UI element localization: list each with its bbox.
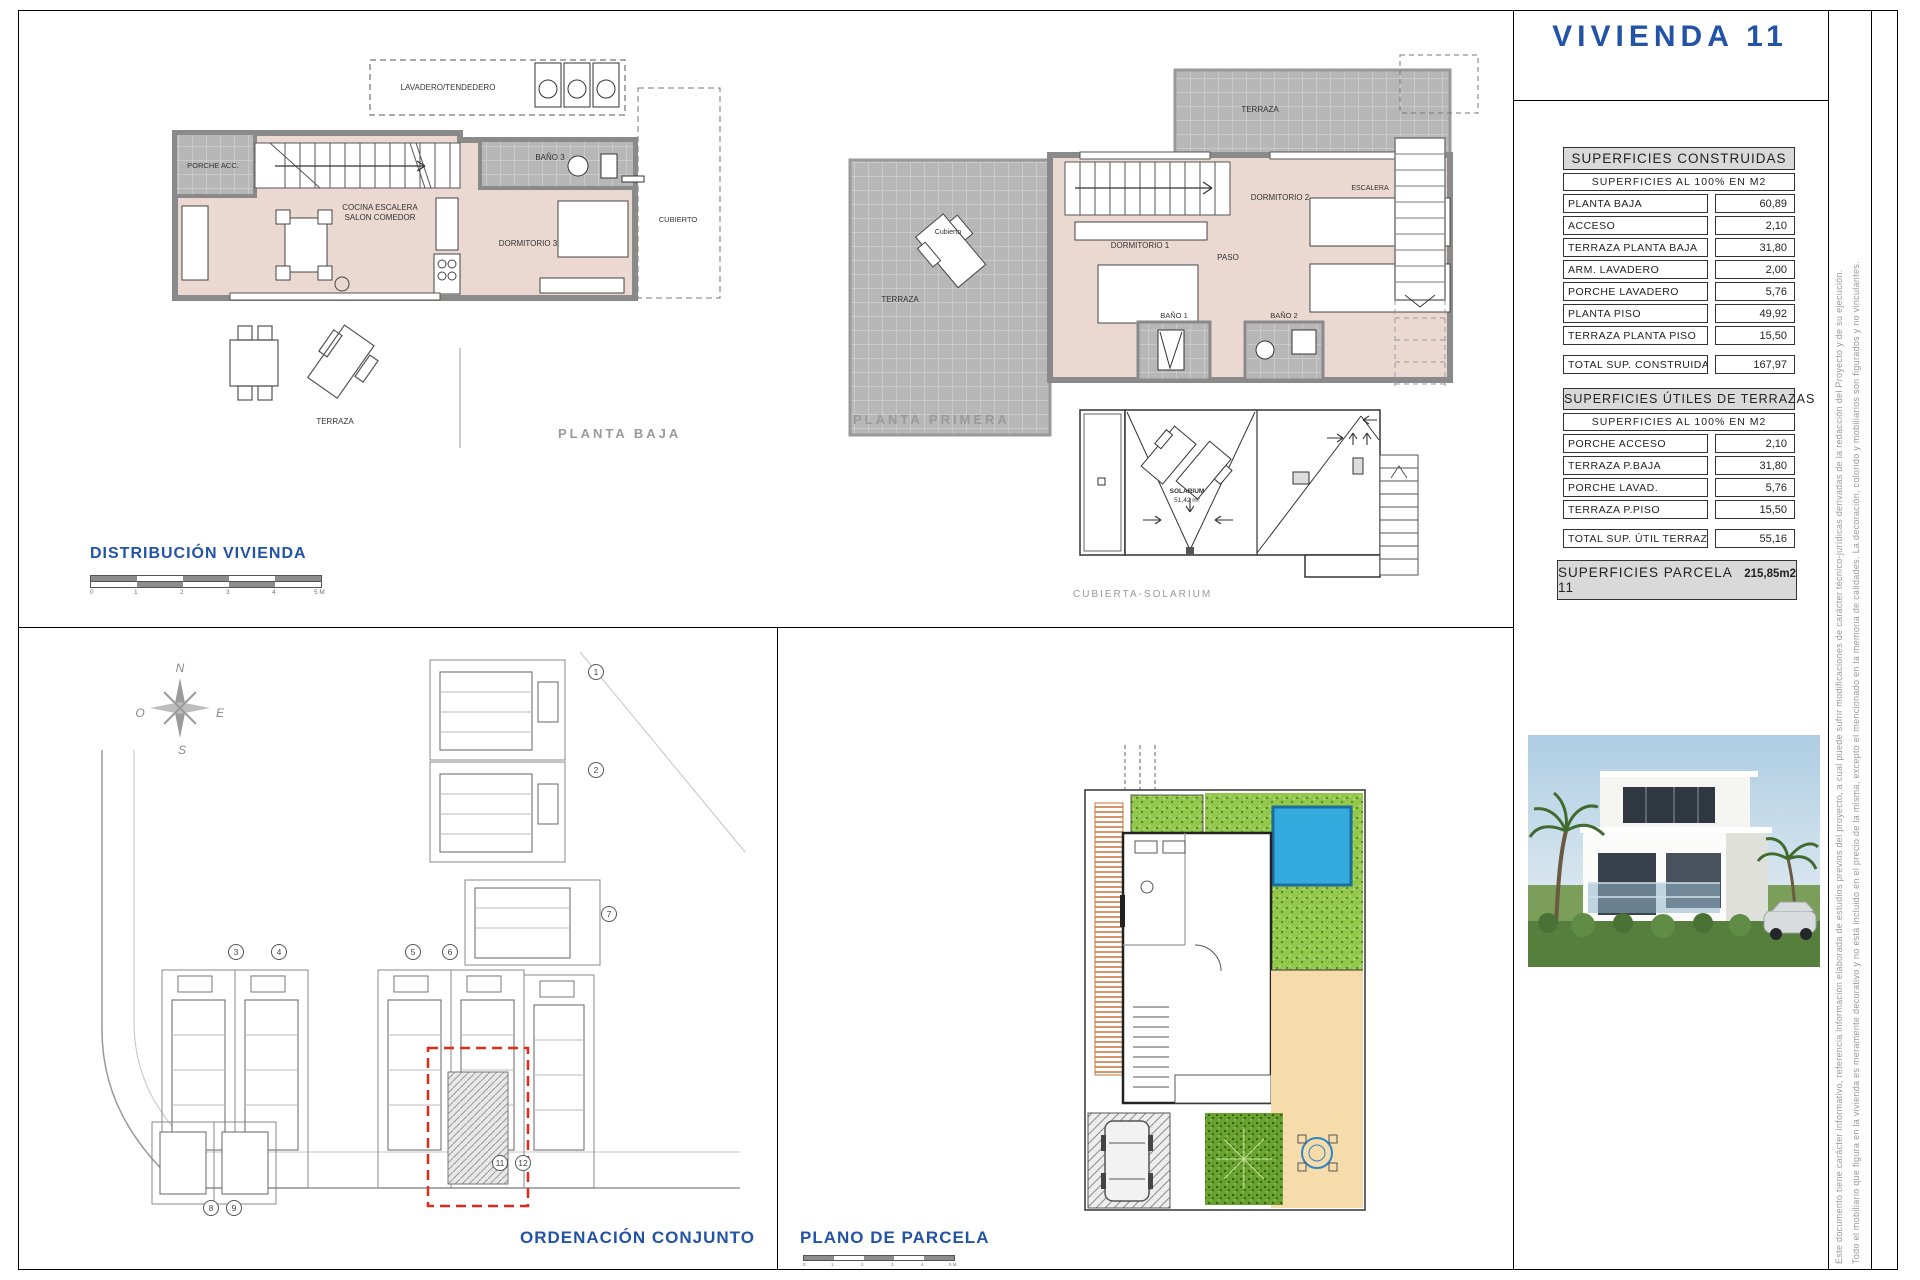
table-superficies-construidas: SUPERFICIES CONSTRUIDAS SUPERFICIES AL 1…: [1563, 147, 1795, 374]
svg-text:BAÑO 2: BAÑO 2: [1270, 311, 1298, 320]
svg-text:BAÑO 3: BAÑO 3: [535, 153, 565, 162]
bano1-room: [1138, 322, 1210, 380]
svg-text:51,42 m²: 51,42 m²: [1174, 497, 1200, 504]
table-row: TERRAZA P.PISO15,50: [1563, 500, 1795, 519]
plot-number-7: 7: [601, 906, 617, 922]
table-row: TERRAZA PLANTA PISO15,50: [1563, 326, 1795, 345]
svg-text:DORMITORIO 3: DORMITORIO 3: [499, 239, 558, 248]
plot-number-9: 9: [226, 1200, 242, 1216]
plot-number-8: 8: [203, 1200, 219, 1216]
svg-text:S: S: [178, 743, 186, 757]
svg-text:LAVADERO/TENDEDERO: LAVADERO/TENDEDERO: [401, 83, 496, 92]
washer-icons: [535, 63, 619, 107]
divider-disclaimer-2: [1871, 10, 1872, 1270]
plot-number-12: 12: [515, 1155, 531, 1171]
plot-number-5: 5: [405, 944, 421, 960]
drain: [1186, 547, 1194, 555]
table-title: SUPERFICIES CONSTRUIDAS: [1563, 147, 1795, 170]
utility-lines: [1125, 745, 1155, 791]
table-row: TERRAZA PLANTA BAJA31,80: [1563, 238, 1795, 257]
table-total-row: TOTAL SUP. ÚTIL TERRAZAS:55,16: [1563, 529, 1795, 548]
plot-7: [465, 880, 600, 965]
svg-text:Cubierto: Cubierto: [935, 229, 962, 236]
lavadero-zone: LAVADERO/TENDEDERO: [370, 60, 625, 115]
table-row: TERRAZA P.BAJA31,80: [1563, 456, 1795, 475]
parcela-value: 215,85m2: [1744, 568, 1796, 580]
scale-bar: 0 1 2 3 4 5 M: [90, 575, 326, 598]
svg-text:TERRAZA: TERRAZA: [881, 295, 919, 304]
planter-strip: [1131, 795, 1203, 833]
scale-ticks: 0 1 2 3 4 5 M: [90, 588, 326, 598]
bano3-room: [480, 140, 644, 188]
table-title: SUPERFICIES ÚTILES DE TERRAZAS: [1563, 388, 1795, 410]
stairs: [1065, 162, 1230, 215]
house-footprint: [1120, 833, 1271, 1103]
svg-text:CUBIERTO: CUBIERTO: [659, 215, 698, 224]
cubierto-zone: [638, 88, 720, 298]
table-subtitle: SUPERFICIES AL 100% EN M2: [1563, 413, 1795, 431]
table-row: ARM. LAVADERO2,00: [1563, 260, 1795, 279]
solarium-plan: SOLARIUM 51,42 m² CUBIERTA-SOLARIUM: [1065, 400, 1425, 605]
planta-primera-caption: PLANTA PRIMERA: [853, 412, 1010, 427]
disclaimer-line-1: Este documento tiene carácter informativ…: [1833, 14, 1846, 1264]
site-caption: ORDENACIÓN CONJUNTO: [520, 1228, 755, 1248]
table-subtitle: SUPERFICIES AL 100% EN M2: [1563, 173, 1795, 191]
divider-bottom-center: [777, 627, 778, 1270]
plots-topright: [430, 660, 565, 862]
plot-number-2: 2: [588, 762, 604, 778]
stairs: [255, 143, 460, 188]
plot-number-6: 6: [442, 944, 458, 960]
page-title: VIVIENDA 11: [1530, 20, 1810, 54]
plot-number-3: 3: [228, 944, 244, 960]
divider-disclaimer: [1828, 10, 1829, 1270]
plot-number-11: 11: [492, 1155, 508, 1171]
car: [1101, 1121, 1153, 1201]
svg-text:COCINA ESCALERA: COCINA ESCALERA: [342, 203, 418, 212]
table-superficies-terrazas: SUPERFICIES ÚTILES DE TERRAZAS SUPERFICI…: [1563, 388, 1795, 548]
parcel-scale-bar: 0 1 2 3 4 5 M: [803, 1255, 959, 1271]
table-row: PORCHE ACCESO2,10: [1563, 434, 1795, 453]
svg-text:TERRAZA: TERRAZA: [316, 417, 354, 426]
building: [1580, 771, 1772, 925]
bush: [1205, 1113, 1283, 1205]
svg-text:PORCHE ACC.: PORCHE ACC.: [187, 161, 239, 170]
svg-text:N: N: [176, 661, 185, 675]
window-band: [230, 293, 440, 300]
table-row: PORCHE LAVADERO5,76: [1563, 282, 1795, 301]
table-total-row: TOTAL SUP. CONSTRUIDA:167,97: [1563, 355, 1795, 374]
divider-title: [1513, 100, 1828, 101]
table-row: ACCESO2,10: [1563, 216, 1795, 235]
parcel-plan: [1055, 745, 1395, 1225]
planta-primera-plan: TERRAZA TERRAZA Cubierto DORMITORIO 1 PA…: [840, 50, 1480, 440]
divider-horizontal: [18, 627, 1513, 628]
site-plan: N E S O: [40, 640, 750, 1240]
svg-text:DORMITORIO 1: DORMITORIO 1: [1111, 241, 1170, 250]
svg-text:ESCALERA: ESCALERA: [1351, 185, 1389, 192]
divider-main-right: [1513, 10, 1514, 1270]
solarium-caption: CUBIERTA-SOLARIUM: [1073, 589, 1212, 600]
svg-text:PASO: PASO: [1217, 253, 1239, 262]
svg-text:E: E: [216, 706, 225, 720]
compass-rose: N E S O: [135, 661, 225, 757]
plot-number-4: 4: [271, 944, 287, 960]
parcel-caption: PLANO DE PARCELA: [800, 1228, 989, 1248]
svg-text:TERRAZA: TERRAZA: [1241, 105, 1279, 114]
driveway: [1088, 1113, 1170, 1208]
table-row: PLANTA PISO49,92: [1563, 304, 1795, 323]
distribucion-label: DISTRIBUCIÓN VIVIENDA: [90, 545, 307, 563]
pergola-strip: [1095, 803, 1123, 1075]
svg-text:SALON COMEDOR: SALON COMEDOR: [344, 213, 415, 222]
parcela-label: SUPERFICIES PARCELA 11: [1558, 565, 1734, 595]
disclaimer-line-2: Todo el mobiliario que figura en la vivi…: [1850, 14, 1863, 1264]
svg-text:O: O: [135, 706, 144, 720]
planta-baja-plan: LAVADERO/TENDEDERO: [80, 48, 760, 448]
house-render: [1528, 735, 1820, 967]
plan-sheet: LAVADERO/TENDEDERO: [0, 0, 1920, 1280]
parcela-summary: SUPERFICIES PARCELA 11 215,85m2: [1557, 560, 1797, 600]
svg-text:DORMITORIO 2: DORMITORIO 2: [1251, 193, 1310, 202]
planta-baja-caption: PLANTA BAJA: [558, 426, 681, 441]
table-row: PLANTA BAJA60,89: [1563, 194, 1795, 213]
terraza-furniture: [230, 322, 384, 405]
svg-text:BAÑO 1: BAÑO 1: [1160, 311, 1188, 320]
plot-number-1: 1: [588, 664, 604, 680]
plots-bottomleft: [152, 1122, 276, 1204]
svg-text:SOLARIUM: SOLARIUM: [1170, 488, 1205, 495]
bano2-room: [1245, 322, 1323, 380]
terraza-left: [850, 160, 1050, 435]
pool: [1273, 807, 1351, 885]
roof-stairs: [1380, 455, 1418, 575]
window-band: [1080, 152, 1210, 159]
table-row: PORCHE LAVAD.5,76: [1563, 478, 1795, 497]
patio-tan: [1271, 970, 1363, 1208]
